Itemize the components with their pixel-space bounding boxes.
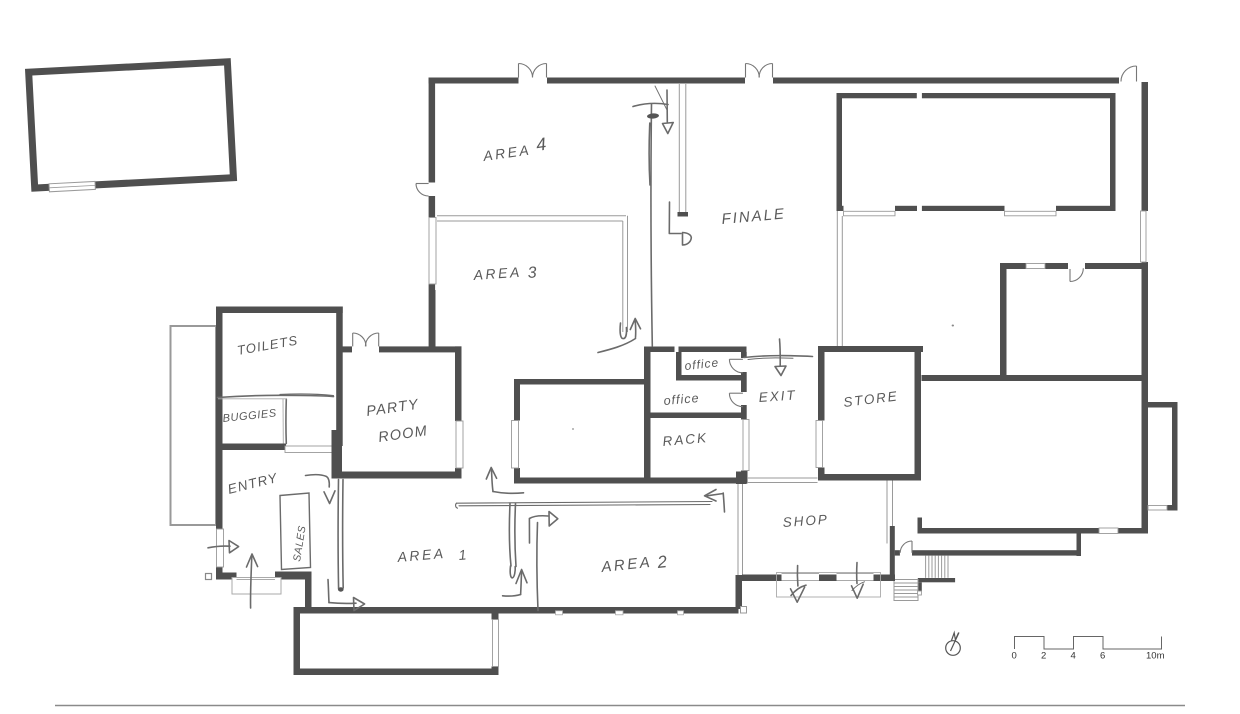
svg-text:6: 6	[1100, 651, 1105, 662]
svg-text:2: 2	[1041, 651, 1046, 662]
svg-text:4: 4	[1071, 651, 1076, 662]
svg-text:10m: 10m	[1146, 651, 1165, 662]
svg-text:EXIT: EXIT	[758, 387, 797, 405]
svg-text:1: 1	[458, 546, 467, 563]
svg-text:0: 0	[1012, 651, 1017, 662]
svg-text:3: 3	[527, 264, 537, 282]
svg-text:AREA: AREA	[472, 264, 522, 283]
